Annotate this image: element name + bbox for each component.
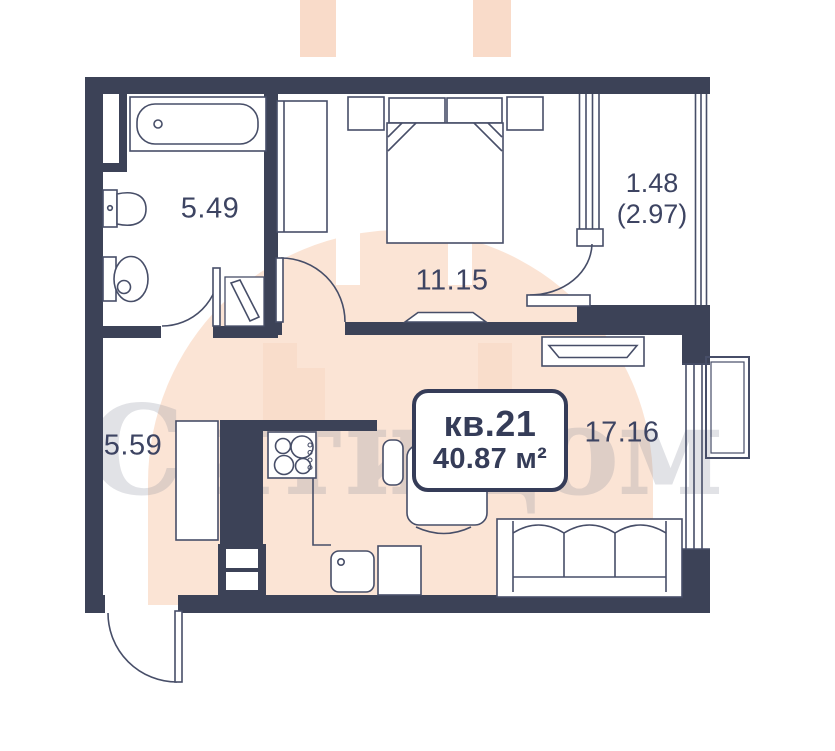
room-area-label-balcony: 1.48 (2.97) (617, 168, 688, 230)
furniture (103, 97, 682, 597)
floor-plan-drawing (0, 0, 835, 751)
bathroom-door-icon (162, 268, 220, 326)
sofa-icon (497, 519, 682, 597)
closet-door-icon (225, 277, 264, 326)
room-area-label-bedroom: 11.15 (416, 265, 489, 298)
balcony-right-glazing-icon (696, 94, 707, 305)
exterior-bay-icon (706, 357, 749, 458)
entrance-door-icon (108, 611, 182, 682)
chair-icon (383, 440, 403, 485)
bedroom-tv-icon (405, 313, 486, 323)
room-area-label-bathroom: 5.49 (181, 193, 239, 226)
dishwasher-icon (378, 546, 421, 595)
kitchen-counter-icon (313, 478, 331, 545)
toilet-icon (103, 190, 146, 227)
wardrobe-icon (277, 101, 327, 232)
nightstand-icon (507, 97, 543, 130)
floor-plan: СитиДом (0, 0, 835, 751)
room-area-label-living: 17.16 (584, 417, 659, 450)
hall-wardrobe-icon (176, 421, 218, 540)
chair-icon (416, 527, 471, 534)
stove-icon (268, 432, 316, 478)
unit-info-box: кв.21 40.87 м² (412, 389, 568, 492)
unit-area: 40.87 м² (433, 443, 547, 476)
unit-number: кв.21 (444, 405, 537, 443)
room-area-label-hallway: 5.59 (104, 430, 162, 463)
kitchen-sink-icon (331, 551, 374, 592)
nightstand-icon (348, 97, 384, 130)
washbasin-icon (103, 257, 148, 302)
bathtub-icon (130, 97, 266, 151)
tv-stand-icon (542, 337, 644, 366)
balcony-area: 1.48 (617, 168, 688, 199)
bedroom-door-icon (276, 258, 345, 322)
balcony-left-glazing-icon (580, 94, 600, 229)
balcony-area-total: (2.97) (617, 199, 688, 230)
balcony-door-icon (527, 229, 603, 306)
bed-icon (387, 98, 503, 243)
